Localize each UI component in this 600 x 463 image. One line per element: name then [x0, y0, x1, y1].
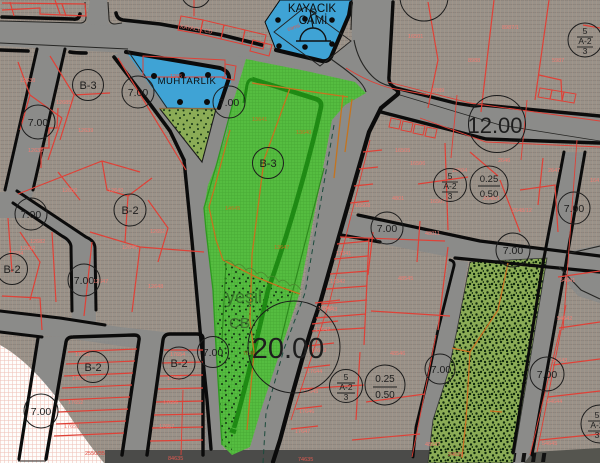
svg-text:7.00: 7.00: [74, 275, 95, 287]
svg-text:5: 5: [448, 171, 453, 181]
svg-text:3: 3: [583, 46, 588, 56]
svg-text:yeşil: yeşil: [226, 287, 262, 307]
svg-text:84635: 84635: [168, 456, 183, 462]
svg-text:CB: CB: [229, 315, 250, 332]
svg-text:7.00: 7.00: [377, 223, 398, 235]
svg-text:54641: 54641: [560, 278, 575, 284]
svg-text:17652: 17652: [68, 400, 83, 406]
svg-text:7.00: 7.00: [219, 97, 240, 109]
svg-text:48546: 48546: [390, 351, 405, 357]
svg-text:16505: 16505: [395, 148, 410, 154]
svg-text:7.00: 7.00: [537, 369, 558, 381]
svg-text:7.00: 7.00: [28, 117, 49, 129]
svg-text:54644: 54644: [547, 399, 562, 405]
svg-text:12647: 12647: [93, 279, 108, 285]
svg-text:7.00: 7.00: [503, 245, 524, 257]
svg-text:17644: 17644: [307, 369, 322, 375]
svg-text:5: 5: [595, 410, 600, 420]
svg-text:17651: 17651: [72, 376, 87, 382]
svg-text:13640: 13640: [296, 130, 311, 136]
svg-text:48547: 48547: [425, 442, 440, 448]
svg-text:12640: 12640: [108, 188, 123, 194]
svg-text:24635: 24635: [448, 452, 463, 458]
svg-text:3: 3: [595, 430, 600, 440]
svg-text:14645: 14645: [225, 206, 240, 212]
svg-text:12645: 12645: [122, 245, 137, 251]
svg-text:12639: 12639: [78, 128, 93, 134]
svg-text:2646: 2646: [498, 158, 510, 164]
svg-text:20.00: 20.00: [252, 333, 325, 365]
svg-text:0.50: 0.50: [480, 189, 499, 200]
svg-text:8989: 8989: [432, 88, 444, 94]
svg-text:8987/1: 8987/1: [502, 25, 519, 31]
svg-text:12.00: 12.00: [467, 113, 522, 138]
svg-text:0.25: 0.25: [480, 174, 499, 185]
svg-text:17646: 17646: [299, 409, 314, 415]
svg-text:7.00: 7.00: [21, 209, 42, 221]
svg-text:B-2: B-2: [121, 205, 138, 217]
svg-text:164: 164: [590, 178, 599, 184]
svg-text:74635: 74635: [298, 457, 313, 463]
svg-text:17341: 17341: [336, 251, 351, 257]
svg-text:12630: 12630: [20, 78, 35, 84]
svg-text:4801: 4801: [392, 196, 404, 202]
svg-text:12652: 12652: [150, 229, 165, 235]
svg-text:48545: 48545: [398, 276, 413, 282]
svg-text:17657: 17657: [159, 424, 174, 430]
svg-text:16508: 16508: [355, 203, 370, 209]
svg-text:48011: 48011: [425, 231, 440, 237]
svg-text:B-3: B-3: [79, 80, 96, 92]
svg-text:7.00: 7.00: [431, 364, 452, 376]
svg-text:54645: 54645: [542, 441, 557, 447]
svg-text:7.00: 7.00: [128, 87, 149, 99]
svg-text:16501: 16501: [408, 34, 423, 40]
svg-text:12633: 12633: [28, 148, 43, 154]
svg-text:12682: 12682: [30, 239, 45, 245]
svg-text:12648: 12648: [148, 284, 163, 290]
svg-text:8988: 8988: [468, 58, 480, 64]
svg-text:3: 3: [448, 191, 453, 201]
svg-text:CAMİ: CAMİ: [299, 14, 328, 27]
svg-text:KAYACIK: KAYACIK: [288, 3, 336, 15]
svg-text:12682: 12682: [20, 246, 35, 252]
svg-text:5: 5: [583, 26, 588, 36]
svg-text:1265: 1265: [170, 74, 182, 80]
svg-text:A-2: A-2: [339, 382, 353, 392]
svg-text:12650: 12650: [62, 188, 77, 194]
svg-text:17656: 17656: [163, 400, 178, 406]
svg-text:17342: 17342: [330, 279, 345, 285]
svg-text:B-2: B-2: [84, 362, 101, 374]
svg-text:7.00: 7.00: [31, 406, 52, 418]
svg-text:B-2: B-2: [3, 264, 20, 276]
svg-text:2648/12: 2648/12: [512, 208, 532, 214]
svg-text:A-2: A-2: [578, 36, 592, 46]
svg-text:17647: 17647: [295, 429, 310, 435]
svg-text:0.50: 0.50: [375, 390, 395, 401]
svg-text:5987: 5987: [552, 58, 564, 64]
svg-text:7.00: 7.00: [564, 203, 585, 215]
svg-text:12685: 12685: [56, 100, 71, 106]
svg-text:13647: 13647: [274, 245, 289, 251]
svg-text:2550/35: 2550/35: [85, 451, 105, 457]
svg-text:54642: 54642: [557, 316, 572, 322]
svg-text:0.25: 0.25: [375, 374, 395, 385]
svg-text:MUHTARLIK: MUHTARLIK: [158, 76, 217, 87]
svg-text:B-3: B-3: [259, 158, 276, 170]
svg-text:16506: 16506: [410, 161, 425, 167]
svg-text:13641: 13641: [252, 117, 267, 123]
svg-text:3: 3: [344, 392, 349, 402]
svg-text:17653: 17653: [64, 424, 79, 430]
svg-text:7.00: 7.00: [203, 347, 224, 359]
svg-text:2647: 2647: [548, 168, 560, 174]
svg-text:5: 5: [344, 372, 349, 382]
svg-text:B-2: B-2: [170, 358, 187, 370]
svg-text:A-2: A-2: [590, 420, 600, 430]
svg-text:A-2: A-2: [443, 181, 457, 191]
